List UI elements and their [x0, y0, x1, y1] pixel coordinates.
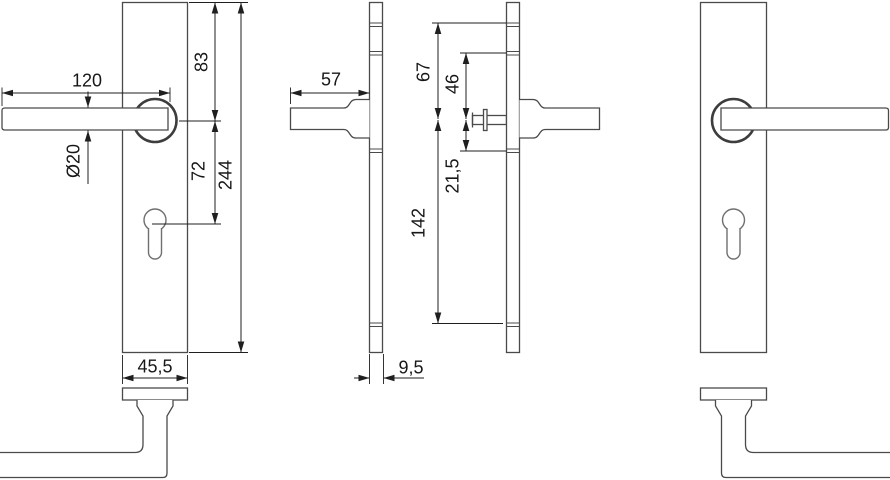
bottom-view-right [701, 388, 890, 478]
backplate-bottom-left [123, 388, 188, 400]
dim-label-hole2-spindle: 46 [442, 74, 462, 94]
bottom-view-left [0, 388, 188, 478]
dim-label-plate-thickness: 9,5 [398, 357, 423, 377]
euro-cylinder-keyhole-left [144, 209, 166, 231]
dim-label-hole1-spindle: 67 [413, 62, 433, 82]
dim-label-projection: 57 [321, 69, 341, 89]
handle-profile-right [520, 100, 600, 139]
backplate-front-left [123, 3, 188, 353]
dim-label-handle-to-cylinder: 72 [188, 161, 208, 181]
handle-bottom-right [716, 400, 890, 478]
front-view-left [2, 3, 188, 353]
backplate-bottom-right [701, 388, 767, 400]
dimensions: 120 83 72 244 Ø20 45,5 57 67 46 21,5 142… [2, 3, 507, 385]
handle-profile-left [291, 100, 370, 139]
technical-drawing-page: 120 83 72 244 Ø20 45,5 57 67 46 21,5 142… [0, 0, 890, 480]
backplate-front-right [701, 3, 767, 353]
side-view-left [291, 3, 383, 353]
dim-label-spindle-hole3: 21,5 [442, 158, 462, 193]
dim-label-lever-length: 120 [72, 70, 102, 90]
euro-cylinder-keyhole-right [723, 209, 745, 231]
front-view-right [701, 3, 889, 353]
handle-bottom-left [0, 400, 173, 478]
dim-label-plate-width: 45,5 [137, 356, 172, 376]
dim-label-spindle-hole4: 142 [408, 208, 428, 238]
spindle [473, 116, 507, 125]
lever-front-left [2, 108, 168, 130]
euro-cylinder-slot-left [149, 228, 162, 259]
lever-front-right [721, 108, 889, 130]
spindle-washer [484, 110, 488, 131]
side-view-right [473, 3, 600, 353]
euro-cylinder-slot-right [727, 228, 740, 259]
door-handle-drawing: 120 83 72 244 Ø20 45,5 57 67 46 21,5 142… [0, 0, 890, 480]
dim-label-plate-length: 244 [215, 160, 235, 190]
dim-label-lever-diameter: Ø20 [63, 144, 83, 178]
dim-label-top-to-handle: 83 [191, 52, 211, 72]
